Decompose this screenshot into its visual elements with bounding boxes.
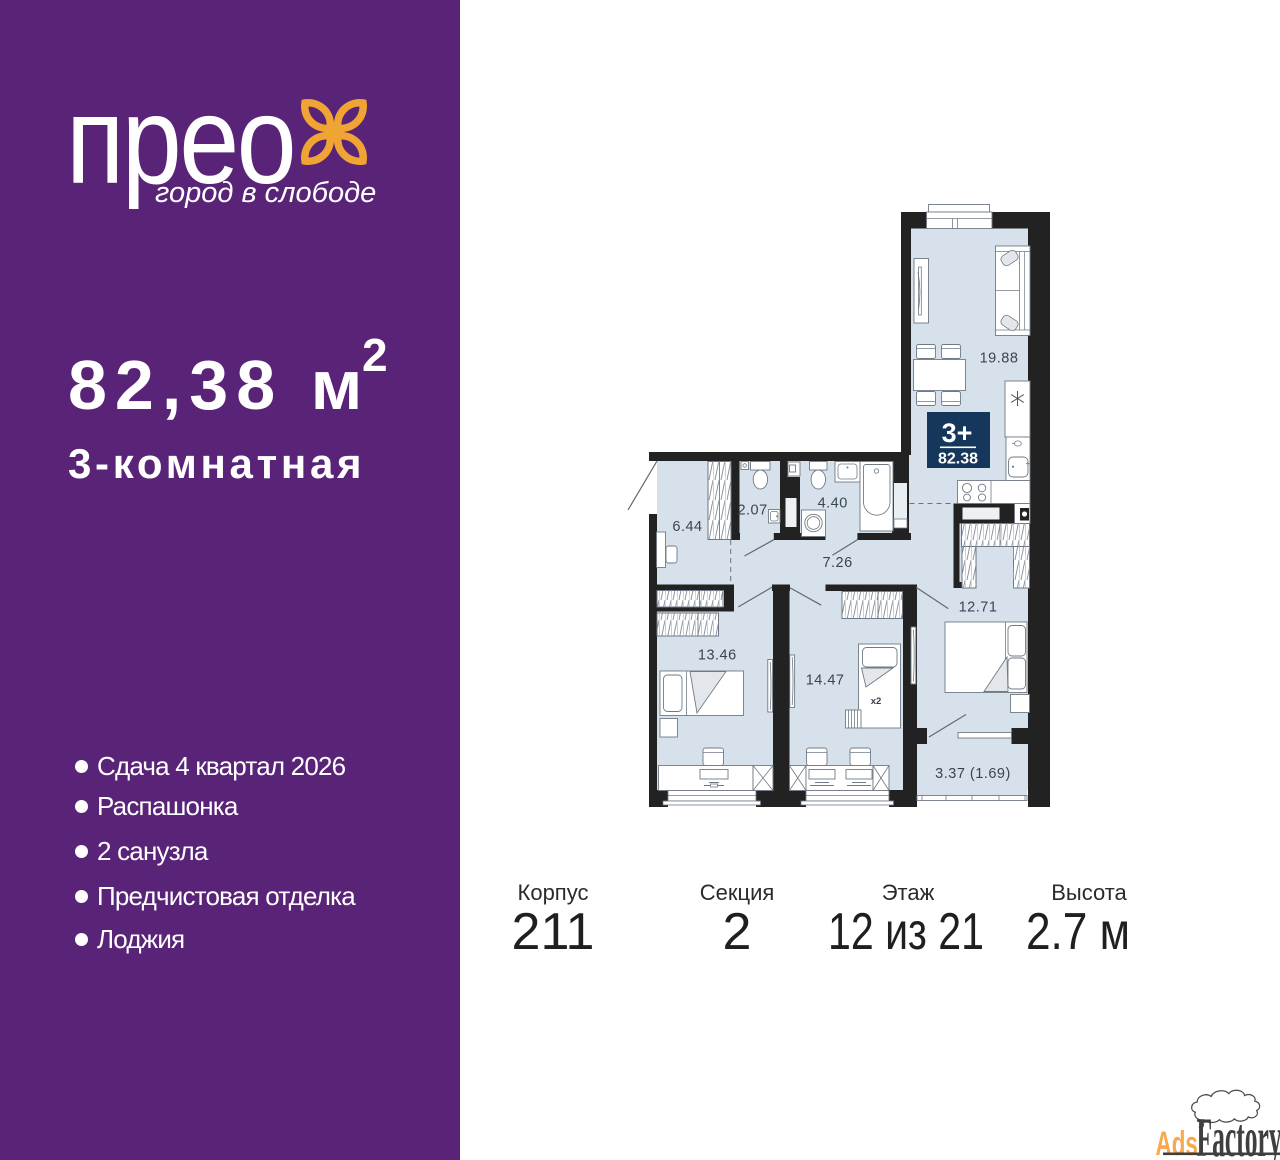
svg-text:82.38: 82.38 (938, 451, 978, 468)
svg-text:12.71: 12.71 (959, 600, 998, 616)
svg-text:3+: 3+ (942, 418, 973, 448)
svg-text:7.26: 7.26 (822, 555, 852, 571)
svg-text:19.88: 19.88 (980, 351, 1019, 367)
svg-text:2.07: 2.07 (737, 503, 767, 519)
svg-text:4.40: 4.40 (818, 496, 848, 512)
svg-text:14.47: 14.47 (806, 673, 845, 689)
svg-text:x2: x2 (871, 696, 882, 707)
svg-text:3.37 (1.69): 3.37 (1.69) (935, 766, 1011, 782)
svg-text:13.46: 13.46 (698, 648, 737, 664)
svg-text:6.44: 6.44 (672, 519, 702, 535)
svg-text:Factory: Factory (1197, 1109, 1280, 1160)
